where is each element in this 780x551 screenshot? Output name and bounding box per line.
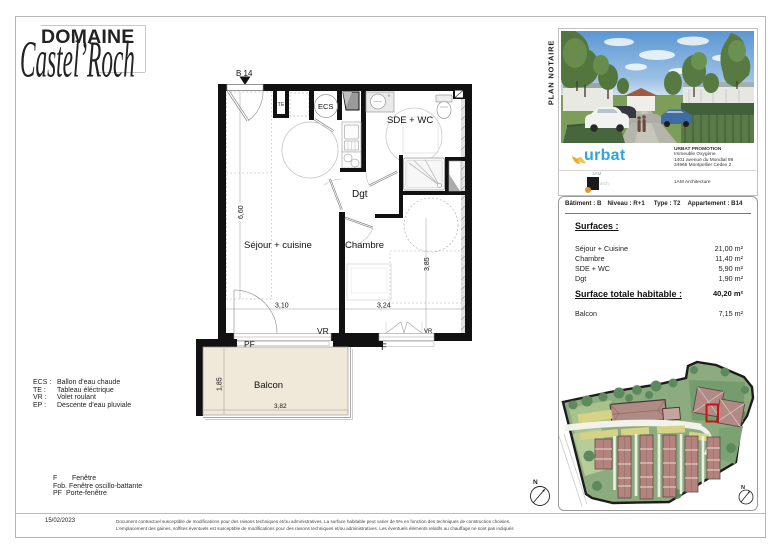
svg-text:3,85: 3,85 [424,257,431,271]
svg-text:Séjour + cuisine: Séjour + cuisine [244,240,312,251]
svg-text:VR: VR [424,329,433,335]
svg-text:N: N [533,479,538,486]
svg-text:6,60: 6,60 [238,205,245,219]
svg-text:PF: PF [244,339,255,349]
svg-text:3,82: 3,82 [274,403,287,410]
svg-text:F: F [381,342,387,353]
svg-text:ECS: ECS [318,102,333,111]
svg-text:TE: TE [278,102,285,108]
svg-text:Balcon: Balcon [254,380,283,391]
svg-text:N: N [741,485,745,491]
svg-text:SDE + WC: SDE + WC [387,115,433,126]
svg-text:Chambre: Chambre [345,240,384,251]
svg-text:VR: VR [317,326,329,336]
svg-text:1,85: 1,85 [217,377,224,391]
svg-text:Dgt: Dgt [352,189,368,200]
svg-text:3,10: 3,10 [275,303,289,310]
svg-text:3,24: 3,24 [377,303,391,310]
